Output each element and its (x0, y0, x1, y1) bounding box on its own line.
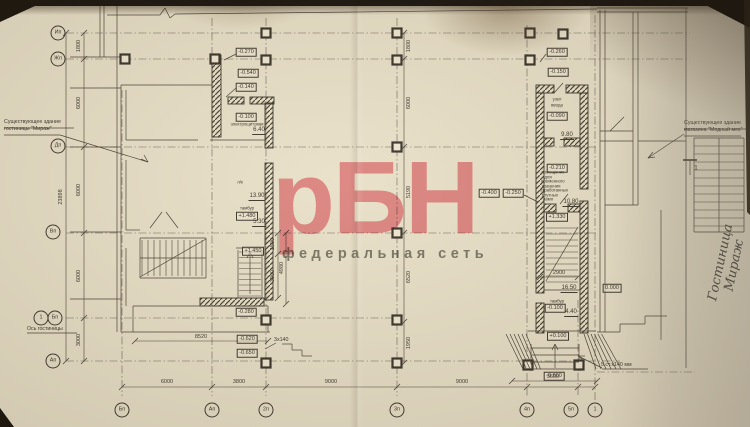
photo-dark-corners (0, 0, 750, 427)
photographed-floor-plan: ИпЖпДпВп1БпАпБпАп2п3п4п5п1-0.270-0.540-0… (0, 0, 750, 427)
